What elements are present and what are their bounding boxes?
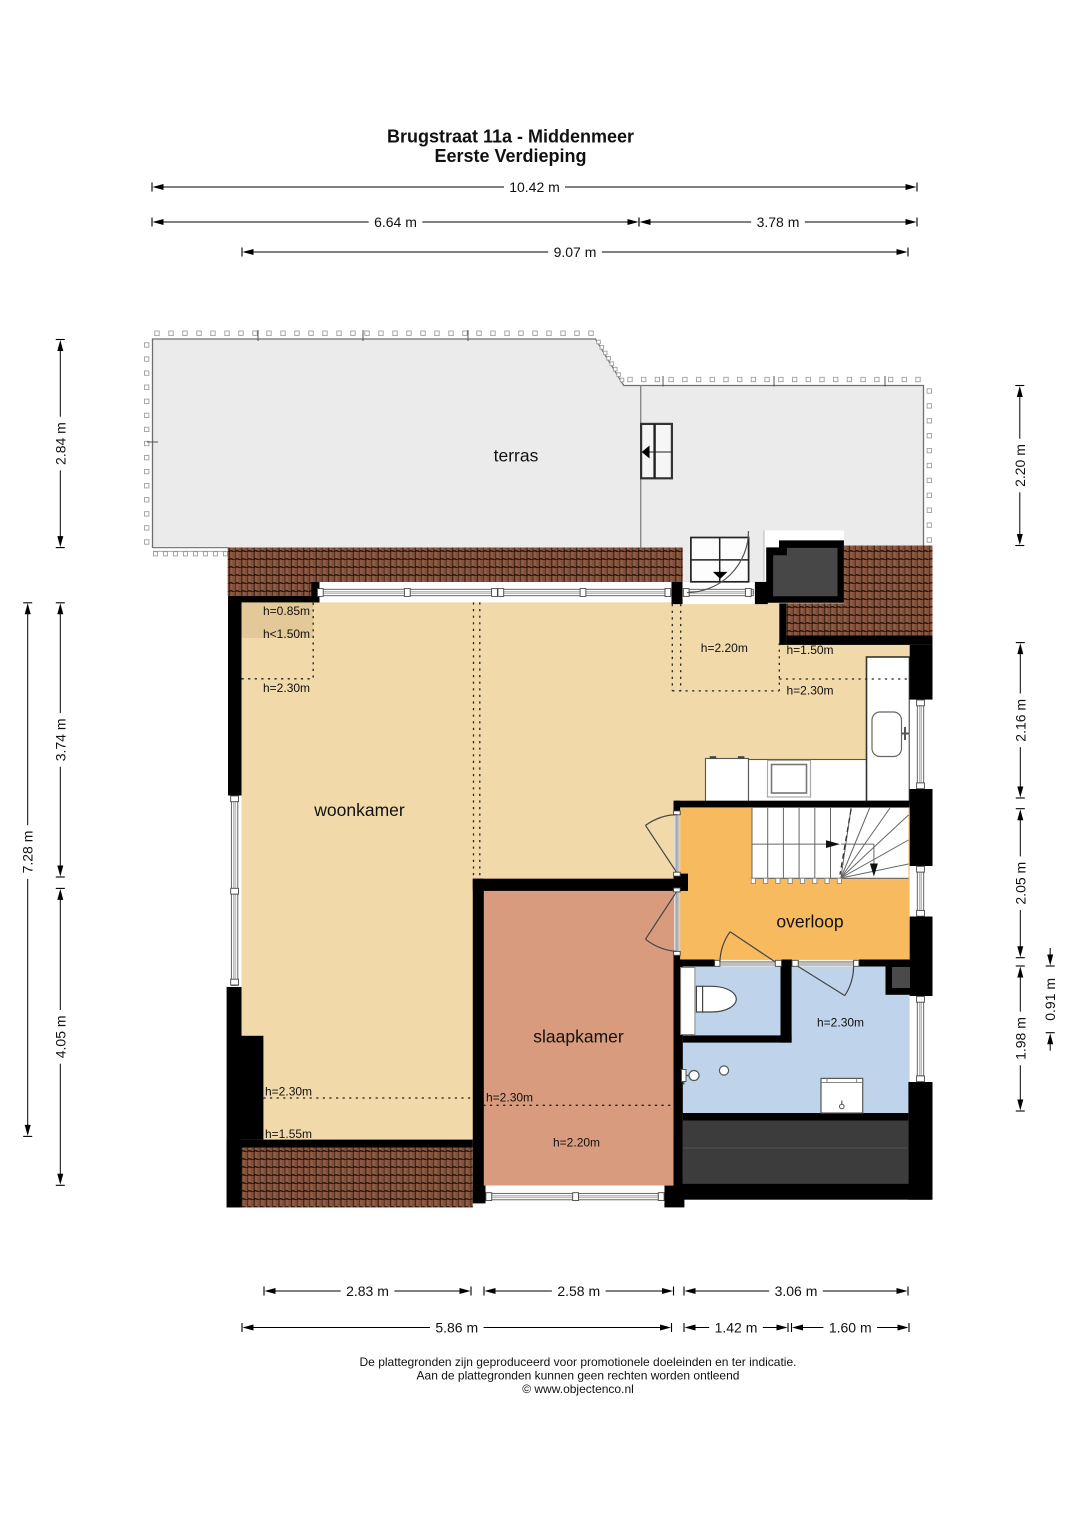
svg-text:3.06 m: 3.06 m <box>775 1283 818 1299</box>
svg-text:h=2.20m: h=2.20m <box>701 641 748 655</box>
svg-text:h=2.30m: h=2.30m <box>486 1091 533 1105</box>
svg-text:7.28 m: 7.28 m <box>20 831 36 874</box>
svg-text:2.05 m: 2.05 m <box>1012 862 1028 905</box>
svg-text:h=2.30m: h=2.30m <box>787 683 834 697</box>
svg-text:h=2.30m: h=2.30m <box>817 1015 864 1029</box>
svg-text:1.98 m: 1.98 m <box>1012 1017 1028 1060</box>
svg-text:slaapkamer: slaapkamer <box>533 1027 624 1047</box>
svg-text:3.74 m: 3.74 m <box>52 718 68 761</box>
svg-text:woonkamer: woonkamer <box>313 800 405 820</box>
svg-text:h=2.30m: h=2.30m <box>263 681 310 695</box>
svg-text:2.16 m: 2.16 m <box>1012 699 1028 742</box>
svg-text:overloop: overloop <box>776 912 843 932</box>
svg-text:10.42 m: 10.42 m <box>509 179 560 195</box>
svg-text:6.64 m: 6.64 m <box>374 214 417 230</box>
svg-text:4.05 m: 4.05 m <box>52 1015 68 1058</box>
svg-text:© www.objectenco.nl: © www.objectenco.nl <box>522 1382 634 1396</box>
svg-text:Aan de plattegronden kunnen ge: Aan de plattegronden kunnen geen rechten… <box>417 1369 740 1383</box>
svg-text:2.20 m: 2.20 m <box>1012 444 1028 487</box>
svg-text:Eerste Verdieping: Eerste Verdieping <box>434 146 586 166</box>
svg-text:De plattegronden zijn geproduc: De plattegronden zijn geproduceerd voor … <box>360 1355 797 1369</box>
svg-text:h<1.50m: h<1.50m <box>263 627 310 641</box>
svg-text:5.86 m: 5.86 m <box>435 1320 478 1336</box>
svg-text:0.91 m: 0.91 m <box>1042 978 1058 1021</box>
svg-text:1.42 m: 1.42 m <box>715 1320 758 1336</box>
svg-text:1.60 m: 1.60 m <box>829 1320 872 1336</box>
svg-text:h=2.20m: h=2.20m <box>553 1135 600 1149</box>
svg-text:2.83 m: 2.83 m <box>346 1283 389 1299</box>
svg-text:2.84 m: 2.84 m <box>52 422 68 465</box>
svg-text:h=0.85m: h=0.85m <box>263 604 310 618</box>
svg-text:Brugstraat 11a - Middenmeer: Brugstraat 11a - Middenmeer <box>387 127 634 147</box>
svg-text:3.78 m: 3.78 m <box>757 214 800 230</box>
svg-text:h=1.55m: h=1.55m <box>265 1127 312 1141</box>
svg-text:terras: terras <box>494 446 539 466</box>
svg-text:9.07 m: 9.07 m <box>554 244 597 260</box>
svg-text:h=2.30m: h=2.30m <box>265 1084 312 1098</box>
svg-text:h=1.50m: h=1.50m <box>787 643 834 657</box>
svg-text:2.58 m: 2.58 m <box>557 1283 600 1299</box>
